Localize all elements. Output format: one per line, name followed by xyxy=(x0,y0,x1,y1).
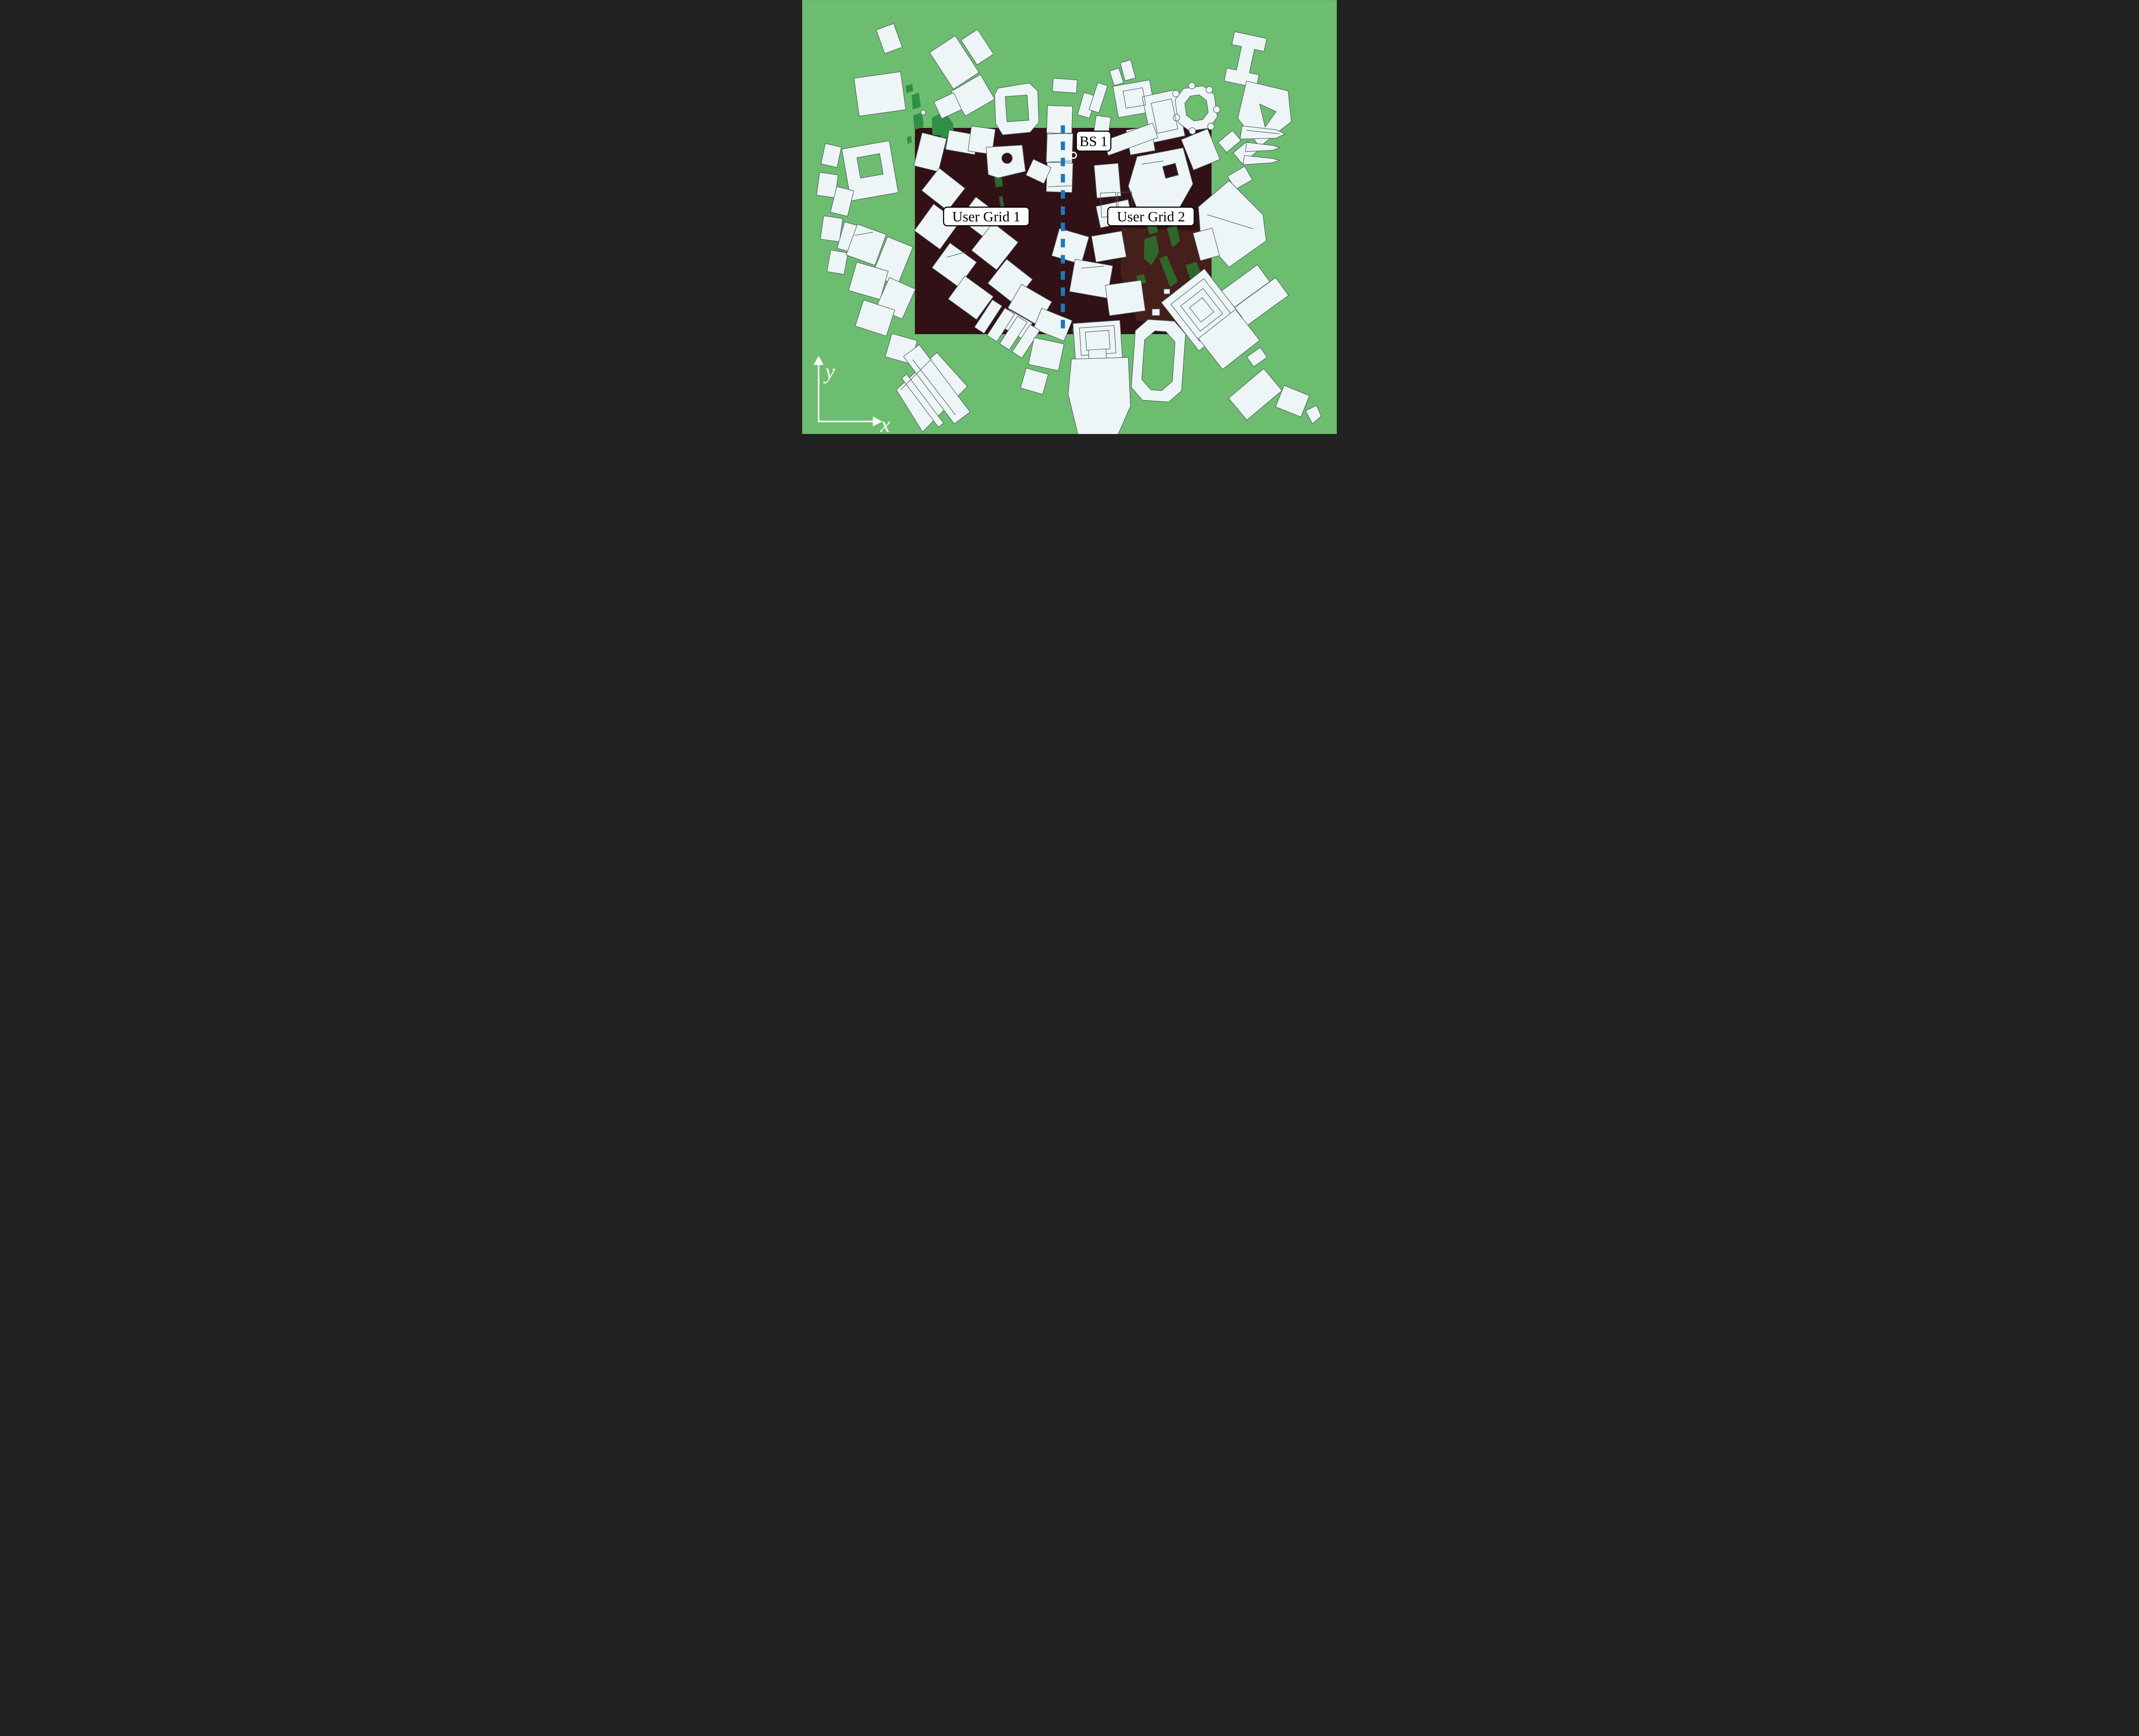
building xyxy=(827,250,848,275)
user-grid-2-label-text: User Grid 2 xyxy=(1117,209,1185,225)
ray-tracing-scenario-figure: BS 1 User Grid 1 User Grid 2 x y xyxy=(802,0,1337,434)
building xyxy=(1068,357,1130,434)
building xyxy=(1152,309,1159,315)
building-round xyxy=(1173,90,1179,97)
building-round xyxy=(1189,128,1196,134)
building xyxy=(820,216,842,242)
building-round xyxy=(1188,82,1195,89)
city-map: BS 1 User Grid 1 User Grid 2 x y xyxy=(802,0,1337,434)
building xyxy=(1092,231,1126,262)
building xyxy=(1046,133,1073,163)
building-round xyxy=(921,110,926,115)
building xyxy=(1052,78,1077,93)
x-axis-label: x xyxy=(880,412,890,434)
bs1-label-text: BS 1 xyxy=(1079,134,1107,149)
building-round xyxy=(1213,106,1220,113)
bs1-label: BS 1 xyxy=(1076,131,1111,151)
building-round xyxy=(1208,123,1214,130)
building xyxy=(1105,280,1145,316)
building xyxy=(854,72,906,116)
user-grid-1-label: User Grid 1 xyxy=(944,207,1029,226)
user-grid-1-label-text: User Grid 1 xyxy=(952,209,1021,225)
building-round xyxy=(1173,114,1180,121)
building xyxy=(1029,338,1064,370)
building xyxy=(1164,289,1170,294)
building-round xyxy=(1206,87,1212,93)
building xyxy=(1047,106,1072,134)
building xyxy=(1046,162,1073,193)
user-grid-2-label: User Grid 2 xyxy=(1108,207,1194,226)
